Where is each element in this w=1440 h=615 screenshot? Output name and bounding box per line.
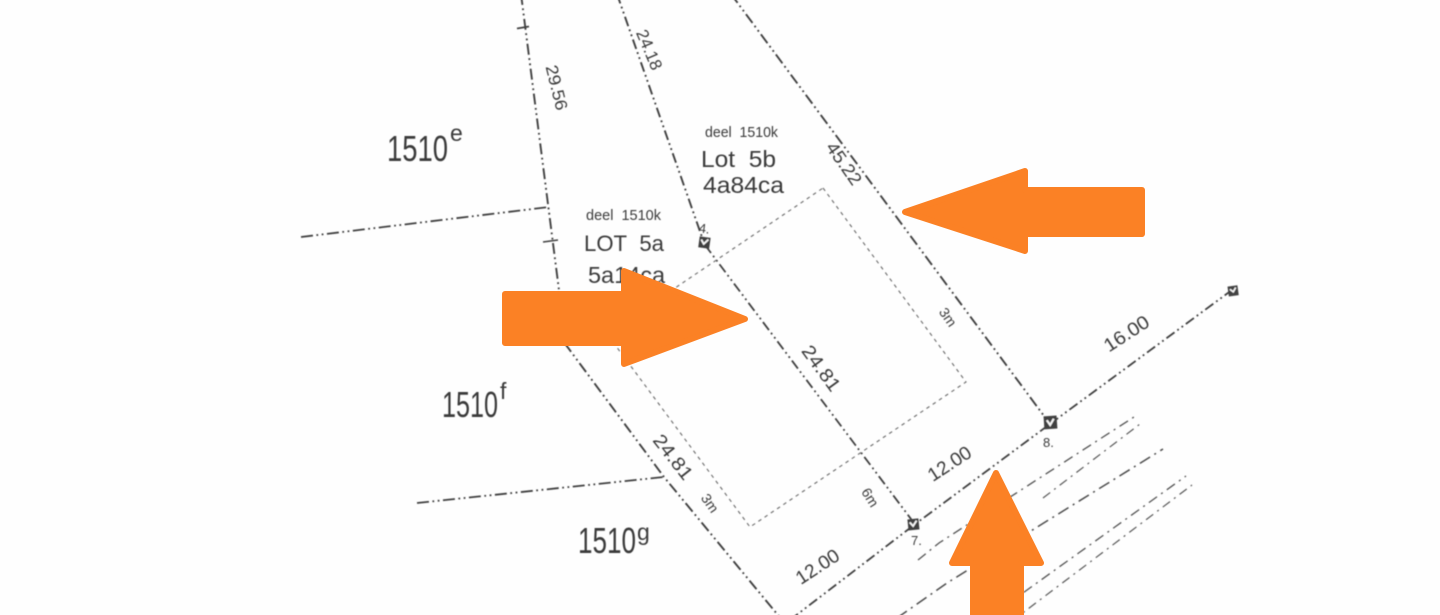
svg-text:7.: 7. (911, 533, 922, 548)
svg-text:1510: 1510 (442, 384, 498, 425)
svg-text:LOT 5a: LOT 5a (584, 231, 665, 256)
svg-text:4.: 4. (698, 220, 711, 236)
svg-text:deel 1510k: deel 1510k (705, 124, 778, 141)
svg-text:4a84ca: 4a84ca (703, 172, 784, 198)
svg-text:g: g (637, 519, 650, 545)
svg-text:deel 1510k: deel 1510k (586, 207, 661, 224)
svg-text:8.: 8. (1043, 435, 1054, 450)
svg-text:1510: 1510 (578, 520, 636, 561)
svg-text:e: e (450, 120, 463, 146)
svg-text:f: f (500, 378, 507, 404)
svg-text:1510: 1510 (387, 128, 448, 169)
svg-text:Lot 5b: Lot 5b (701, 146, 776, 172)
